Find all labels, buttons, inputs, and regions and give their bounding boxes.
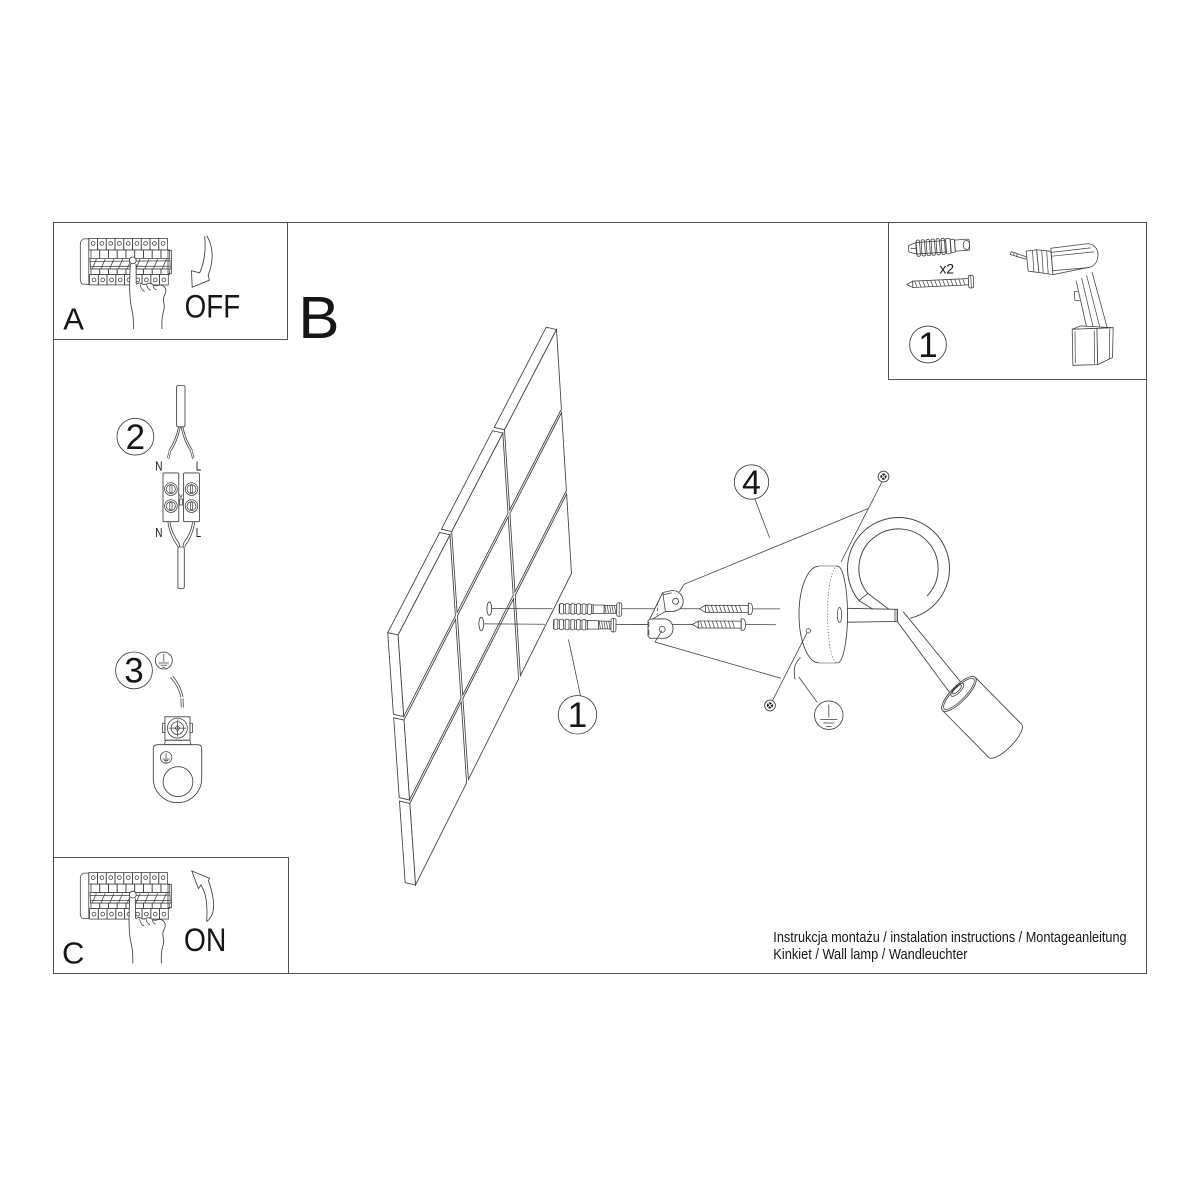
- svg-text:N: N: [155, 525, 162, 540]
- svg-text:C: C: [62, 936, 84, 971]
- svg-text:N: N: [155, 459, 162, 474]
- svg-text:B: B: [298, 284, 339, 351]
- svg-text:A: A: [63, 302, 84, 337]
- svg-text:L: L: [196, 459, 201, 474]
- svg-text:Kinkiet / Wall lamp / Wandleuc: Kinkiet / Wall lamp / Wandleuchter: [773, 946, 967, 963]
- svg-text:OFF: OFF: [185, 288, 241, 325]
- svg-text:L: L: [196, 525, 201, 540]
- svg-text:ON: ON: [184, 921, 227, 958]
- svg-text:x2: x2: [940, 262, 955, 277]
- svg-text:3: 3: [124, 652, 143, 691]
- svg-text:4: 4: [742, 464, 761, 502]
- svg-text:2: 2: [126, 418, 145, 457]
- svg-text:1: 1: [918, 326, 937, 365]
- svg-text:Instrukcja montażu / instalati: Instrukcja montażu / instalation instruc…: [773, 929, 1126, 946]
- svg-text:1: 1: [568, 696, 587, 735]
